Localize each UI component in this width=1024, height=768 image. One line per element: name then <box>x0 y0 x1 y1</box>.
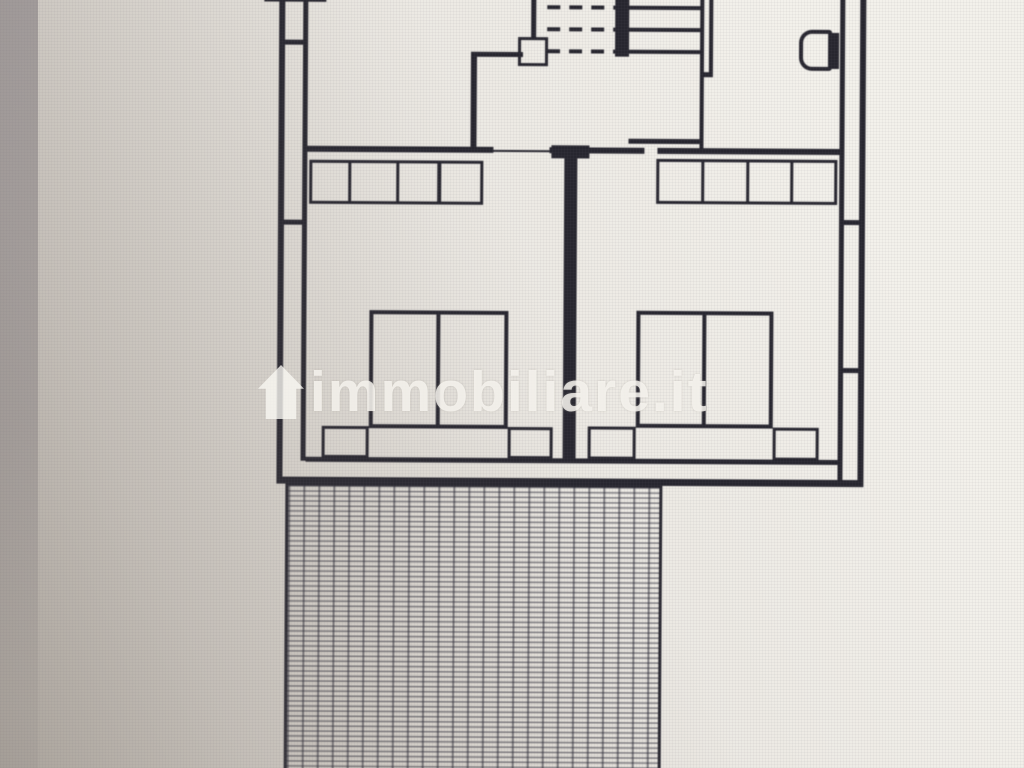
wall-right-tick-mid <box>838 368 864 373</box>
bed-left <box>369 310 509 429</box>
wall-hall-bottom-left <box>307 146 493 153</box>
wall-left-tick-top <box>279 40 308 45</box>
wall-left-tick-mid <box>278 220 307 225</box>
door-threshold-left-bedroom <box>493 150 549 152</box>
stair-cut-bar <box>615 0 629 57</box>
wall-closet-horizontal <box>471 52 523 57</box>
floor-plan <box>0 0 1024 768</box>
stair-dashed-line-2 <box>547 27 615 31</box>
nightstand-left-2 <box>508 427 553 459</box>
wall-between-bedrooms <box>563 153 578 462</box>
wall-stair-right-tick <box>700 72 713 77</box>
stair-dashed-line-3 <box>547 49 615 53</box>
screen-photo: immobiliare.it <box>0 0 1024 768</box>
wardrobe-left <box>309 160 483 205</box>
wall-top-cut <box>264 0 326 2</box>
toilet-bowl <box>799 30 832 71</box>
stair-tread-3 <box>629 50 702 54</box>
nightstand-right-1 <box>588 426 636 459</box>
stair-landing-box <box>518 37 548 66</box>
wall-closet-vertical <box>470 52 477 149</box>
wall-above-landing-box <box>531 0 536 38</box>
wall-stair-bottom <box>628 139 703 144</box>
wall-right-tick-top <box>839 220 865 225</box>
wall-bottom-inner <box>306 457 838 465</box>
wall-stair-right-b <box>709 0 714 77</box>
stair-dashed-line-1 <box>547 5 615 9</box>
wardrobe-right <box>656 159 837 205</box>
nightstand-right-2 <box>773 428 819 461</box>
stair-tread-1 <box>629 6 702 10</box>
stair-tread-2 <box>629 28 702 32</box>
terrace-hatch <box>284 482 663 768</box>
bed-right <box>636 311 774 429</box>
wall-left-inner <box>301 0 309 461</box>
wall-right-inner <box>837 0 845 483</box>
wall-left-outer <box>276 0 285 478</box>
wall-hall-bottom-right <box>657 148 839 155</box>
nightstand-left-1 <box>322 426 369 458</box>
wall-right-outer <box>857 0 866 487</box>
